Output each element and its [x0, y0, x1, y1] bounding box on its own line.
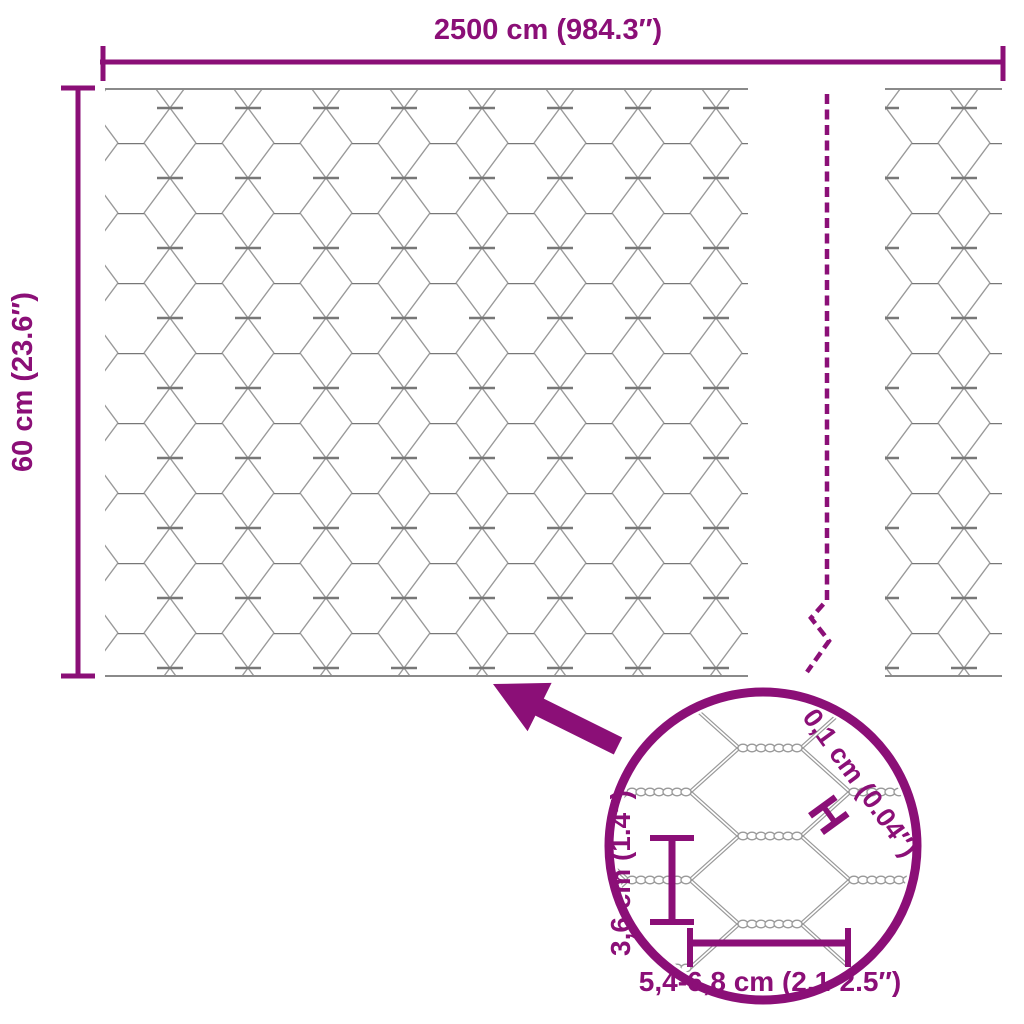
detail-wire-twist — [792, 832, 802, 840]
detail-wire-line — [356, 791, 405, 835]
detail-wire-twist — [459, 876, 469, 884]
detail-wire-line — [467, 747, 516, 791]
detail-wire-twist — [450, 788, 460, 796]
detail-wire-twist — [459, 964, 469, 972]
detail-wire-line — [913, 879, 962, 923]
detail-wire-twist — [441, 876, 451, 884]
detail-wire-twist — [969, 920, 979, 928]
detail-wire-twist — [570, 832, 580, 840]
detail-wire-twist — [525, 744, 535, 752]
detail-wire-twist — [987, 832, 997, 840]
detail-wire-line — [467, 705, 516, 749]
detail-wire-twist — [627, 964, 637, 972]
detail-wire-twist — [1005, 832, 1015, 840]
detail-wire-twist — [441, 788, 451, 796]
detail-wire-twist — [978, 744, 988, 752]
detail-wire-twist — [525, 920, 535, 928]
detail-wire-line — [913, 703, 962, 747]
detail-wire-twist — [570, 920, 580, 928]
detail-wire-line — [911, 881, 960, 925]
detail-wire-twist — [552, 920, 562, 928]
detail-wire-twist — [432, 788, 442, 796]
detail-wire-twist — [441, 964, 451, 972]
break-line-icon — [807, 94, 829, 672]
detail-wire-twist — [405, 876, 415, 884]
detail-wire-twist — [561, 920, 571, 928]
mesh-pattern-right — [885, 88, 1002, 676]
detail-wire-line — [356, 879, 405, 923]
detail-wire-twist — [1014, 744, 1024, 752]
detail-wire-twist — [903, 964, 913, 972]
detail-wire-line — [358, 793, 407, 837]
mesh-panel-right — [885, 88, 1002, 676]
detail-wire-twist — [570, 744, 580, 752]
detail-wire-twist — [960, 744, 970, 752]
detail-wire-twist — [405, 964, 415, 972]
detail-wire-twist — [987, 920, 997, 928]
detail-wire-twist — [414, 788, 424, 796]
detail-wire-line — [358, 881, 407, 925]
detail-wire-twist — [969, 744, 979, 752]
detail-wire-twist — [552, 744, 562, 752]
detail-wire-line — [913, 749, 962, 793]
detail-wire-twist — [516, 832, 526, 840]
detail-wire-twist — [987, 744, 997, 752]
detail-wire-line — [911, 705, 960, 749]
mesh-pattern-main — [105, 88, 748, 676]
detail-wire-twist — [459, 788, 469, 796]
detail-wire-twist — [534, 920, 544, 928]
width-dimension-label: 2500 cm (984.3″) — [434, 14, 662, 46]
detail-wire-twist — [450, 964, 460, 972]
detail-wire-twist — [414, 964, 424, 972]
diagram-canvas: 2500 cm (984.3″) 60 cm (23.6″) 3,6 cm (1… — [0, 0, 1024, 1024]
detail-wire-twist — [996, 920, 1006, 928]
detail-wire-twist — [561, 832, 571, 840]
detail-wire-twist — [516, 744, 526, 752]
detail-wire-twist — [561, 744, 571, 752]
detail-wire-twist — [996, 832, 1006, 840]
detail-wire-line — [911, 747, 960, 791]
height-dimension: 60 cm (23.6″) — [7, 86, 95, 678]
detail-wire-twist — [552, 832, 562, 840]
detail-wire-twist — [960, 920, 970, 928]
detail-wire-twist — [1005, 920, 1015, 928]
mesh-panel-main — [105, 88, 748, 676]
detail-wire-twist — [978, 920, 988, 928]
detail-wire-line — [469, 879, 518, 923]
detail-wire-twist — [969, 832, 979, 840]
detail-wire-line — [469, 837, 518, 881]
detail-wire-twist — [450, 876, 460, 884]
detail-wire-line — [469, 791, 518, 835]
detail-wire-twist — [516, 920, 526, 928]
detail-wire-twist — [792, 920, 802, 928]
detail-wire-twist — [960, 832, 970, 840]
detail-wire-twist — [543, 832, 553, 840]
detail-wire-line — [467, 881, 516, 925]
detail-wire-twist — [534, 744, 544, 752]
detail-wire-twist — [1005, 744, 1015, 752]
detail-wire-line — [469, 703, 518, 747]
detail-wire-twist — [423, 876, 433, 884]
detail-wire-twist — [543, 744, 553, 752]
detail-wire-twist — [423, 964, 433, 972]
detail-wire-twist — [525, 832, 535, 840]
detail-wire-twist — [792, 744, 802, 752]
detail-wire-line — [911, 923, 960, 967]
height-dimension-label: 60 cm (23.6″) — [7, 292, 39, 472]
detail-wire-line — [469, 925, 518, 969]
detail-wire-twist — [996, 744, 1006, 752]
detail-wire-twist — [405, 788, 415, 796]
detail-wire-twist — [1014, 920, 1024, 928]
detail-wire-line — [913, 925, 962, 969]
detail-wire-line — [467, 835, 516, 879]
magnifier-circle-icon — [609, 692, 917, 1000]
detail-wire-twist — [1014, 832, 1024, 840]
width-dimension: 2500 cm (984.3″) — [100, 14, 1005, 81]
detail-wire-line — [469, 749, 518, 793]
product-dimension-diagram: 2500 cm (984.3″) 60 cm (23.6″) 3,6 cm (1… — [0, 0, 1024, 1024]
detail-wire-twist — [432, 876, 442, 884]
detail-wire-line — [467, 923, 516, 967]
detail-mesh-width-label: 5,4-6,8 cm (2.1-2.5″) — [639, 966, 901, 997]
detail-wire-twist — [423, 788, 433, 796]
zoom-arrow-icon — [493, 683, 622, 755]
detail-wire-twist — [534, 832, 544, 840]
detail-wire-twist — [978, 832, 988, 840]
detail-wire-twist — [432, 964, 442, 972]
detail-wire-twist — [681, 876, 691, 884]
detail-wire-twist — [681, 788, 691, 796]
detail-wire-twist — [543, 920, 553, 928]
detail-view: 3,6 cm (1.4″) 5,4-6,8 cm (2.1-2.5″) 0,1 … — [356, 692, 1024, 1000]
detail-wire-line — [467, 793, 516, 837]
detail-wire-twist — [414, 876, 424, 884]
detail-mesh-height-label: 3,6 cm (1.4″) — [605, 790, 636, 956]
